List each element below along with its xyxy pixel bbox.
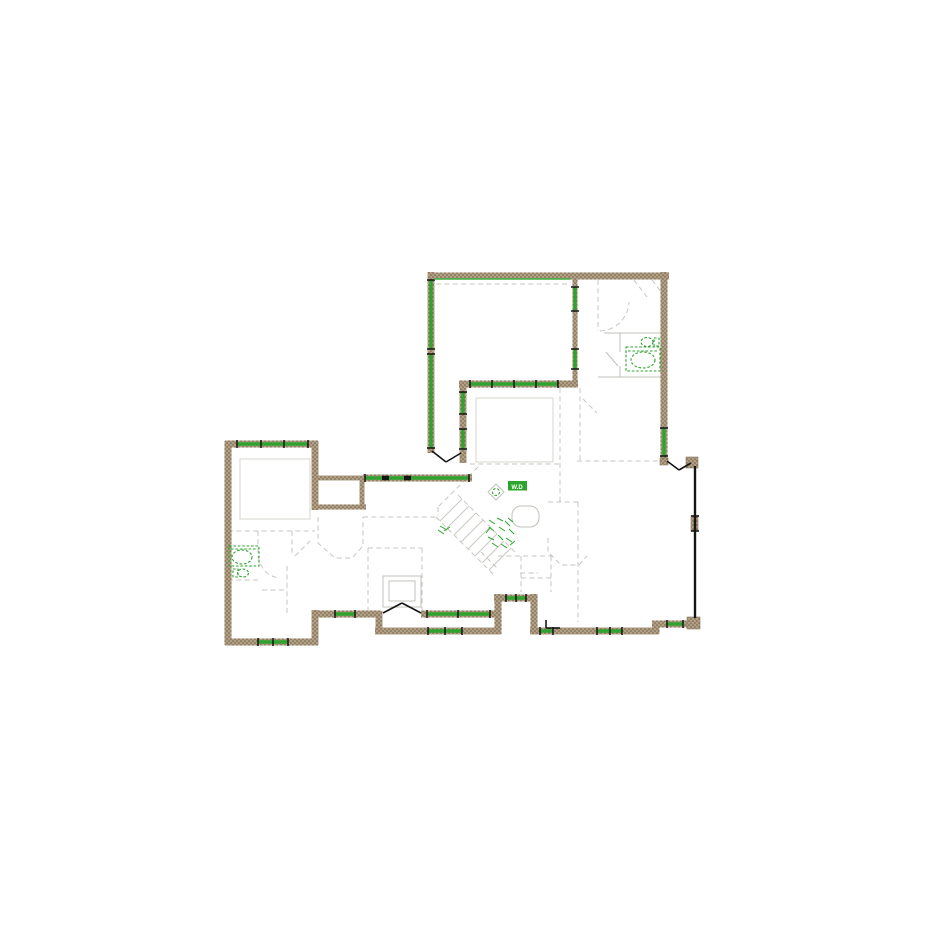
bathtub-basin (232, 550, 252, 564)
stair-tread (468, 527, 490, 549)
stair-tread (489, 548, 511, 570)
stair-layer (440, 499, 511, 570)
interior-dashed-wall (634, 280, 647, 297)
french-door-swing (383, 603, 402, 613)
interior-dashed-wall (583, 399, 597, 413)
firebox-outline (389, 581, 415, 601)
interior-lines-layer (383, 333, 662, 607)
pantry-shelving-mark (509, 529, 514, 534)
pantry-shelving-mark (505, 521, 510, 526)
toilet-bowl (238, 569, 249, 577)
interior-dashed-wall (438, 467, 478, 507)
pantry-shelving-mark (498, 535, 503, 540)
pantry-shelving-mark (497, 518, 503, 521)
pantry-shelving-mark (506, 538, 512, 542)
kitchen-island-outline (512, 506, 539, 527)
fixtures-layer (229, 338, 660, 578)
stair-tread (440, 499, 462, 521)
stair-tread (475, 534, 497, 556)
toilet-bowl (641, 338, 653, 347)
pantry-shelving-mark (501, 544, 507, 548)
tray-ceiling-outline (240, 459, 310, 519)
pantry-shelving-mark (499, 527, 505, 531)
pantry-shelving-mark (492, 543, 498, 547)
interior-dashed-wall (295, 541, 310, 556)
french-door-swing (402, 603, 421, 613)
laundry-sink (488, 484, 504, 500)
laundry-sink-drain (493, 489, 500, 496)
interior-dashed-wall (600, 302, 629, 331)
stair-tread (482, 541, 504, 563)
floor-plan-canvas: W.D (0, 0, 925, 925)
porch-post (687, 617, 700, 629)
washer-dryer-label: W.D (511, 485, 523, 491)
interior-dashed-wall (318, 517, 363, 558)
pantry-shelving-mark (489, 520, 495, 524)
interior-line (606, 352, 618, 366)
door-swing (446, 453, 461, 462)
door-swing (432, 451, 446, 462)
stair-tread (447, 506, 469, 528)
stair-tread (454, 513, 476, 535)
bathtub-basin (631, 352, 655, 368)
floor-plan-page: W.D (0, 0, 925, 925)
tray-ceiling-outline (476, 398, 553, 462)
interior-dashed-wall (548, 538, 587, 565)
toilet-tank (654, 338, 659, 346)
pantry-shelving-mark (438, 530, 444, 534)
door-swing (667, 461, 679, 470)
ceiling-outlines-layer (240, 398, 553, 519)
interior-dashed-wall (258, 556, 280, 578)
interior-dashed-wall (481, 552, 498, 569)
interior-partitions-layer (228, 280, 665, 622)
stair-tread (461, 520, 483, 542)
